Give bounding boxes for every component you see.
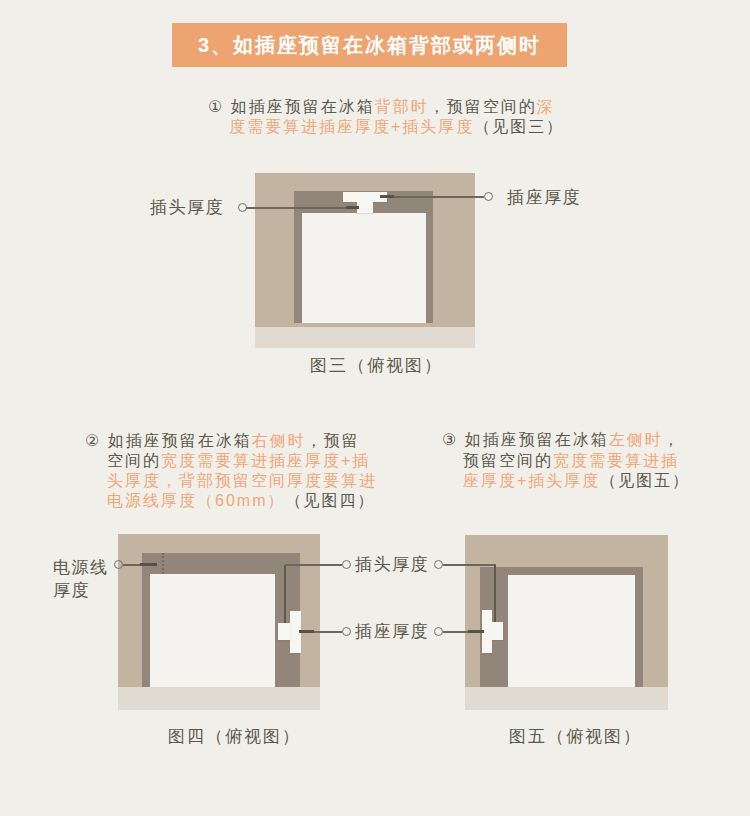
fig5-plug-callout-line [443,564,496,566]
center-plug-right-circle-icon [434,560,443,569]
fig3-caption: 图三（俯视图） [310,356,443,376]
fig4-cord-callout-stub [140,563,157,566]
fig4-plug [278,623,290,640]
fig3-socket-callout-stub [380,195,394,198]
paragraph-1-line-2: 度需要算进插座厚度+插头厚度（见图三） [229,117,564,137]
fig5-socket-callout-stub [468,630,484,633]
fig5-socket-callout-line [443,631,468,633]
fig4-socket-callout-line [314,631,342,633]
fig3-plug-callout-stub [346,206,359,209]
fig3-plug [357,202,373,213]
text-segment: ，预留 [306,432,360,449]
fig4-floor-strip [118,687,320,710]
fig3-plug-callout-circle-icon [238,203,247,212]
fig4-cord-callout-circle-icon [114,560,123,569]
fig3-socket-callout-line [394,196,484,198]
text-segment: 头厚度，背部预留空间厚度要算进 [107,472,377,489]
fig4-caption: 图四（俯视图） [168,727,301,747]
text-segment: ③ 如插座预留在冰箱 [442,431,609,448]
paragraph-2-line-1: ② 如插座预留在冰箱右侧时，预留 [85,431,360,451]
fig4-cord-thickness-label: 电源线 厚度 [53,556,109,602]
paragraph-3-line-1: ③ 如插座预留在冰箱左侧时， [442,430,681,450]
text-segment: 度需要算进插座厚度+插头厚度 [229,118,474,135]
fig5-caption: 图五（俯视图） [509,727,642,747]
fig4-cord-label-line-1: 电源线 [53,556,109,579]
text-segment: 预留空间的 [463,452,553,469]
fig3-socket-thickness-label: 插座厚度 [507,188,581,208]
fig4-socket-callout-stub [299,630,314,633]
fig4-cord-dotted-line [162,553,164,574]
fig4-cord-callout-line [123,564,140,566]
text-segment: 宽度需要算进插 [553,452,679,469]
fig3-fridge-body [302,213,426,323]
center-plug-thickness-label: 插头厚度 [355,555,429,575]
text-segment: 宽度需要算进插座厚度+插 [161,452,370,469]
text-segment: ① 如插座预留在冰箱 [208,98,375,115]
text-segment: 座厚度+插头厚度 [463,472,600,489]
paragraph-2-line-2: 空间的宽度需要算进插座厚度+插 [107,451,370,471]
paragraph-3-line-2: 预留空间的宽度需要算进插 [463,451,679,471]
fig4-plug-callout-vline [284,565,286,623]
center-socket-left-circle-icon [342,627,351,636]
text-segment: ，预留空间的 [429,98,537,115]
text-segment: ， [663,431,681,448]
fig3-socket-callout-circle-icon [484,192,493,201]
fig3-floor-strip [255,327,475,348]
fig4-fridge-body [150,574,275,687]
fig5-floor-strip [465,687,668,710]
fig5-fridge-body [508,575,635,687]
fig4-cord-label-line-2: 厚度 [53,579,109,602]
paragraph-2-line-3: 头厚度，背部预留空间厚度要算进 [107,471,377,491]
paragraph-1-line-1: ① 如插座预留在冰箱背部时，预留空间的深 [208,97,555,117]
fig5-plug-callout-vline [494,565,496,622]
text-segment: （见图四） [285,492,375,509]
paragraph-3-line-3: 座厚度+插头厚度（见图五） [463,471,690,491]
text-segment: 空间的 [107,452,161,469]
text-segment: （见图五） [600,472,690,489]
center-plug-left-circle-icon [342,560,351,569]
fig5-plug [492,622,503,640]
text-segment: 背部时 [375,98,429,115]
text-segment: 左侧时 [609,431,663,448]
center-socket-thickness-label: 插座厚度 [355,622,429,642]
fig3-plug-callout-line [246,207,346,209]
paragraph-2-line-4: 电源线厚度（60mm）（见图四） [107,491,375,511]
center-socket-right-circle-icon [434,627,443,636]
section-banner: 3、如插座预留在冰箱背部或两侧时 [172,23,567,67]
text-segment: ② 如插座预留在冰箱 [85,432,252,449]
text-segment: 电源线厚度（60mm） [107,492,285,509]
fig3-plug-thickness-label: 插头厚度 [150,198,224,218]
page: 3、如插座预留在冰箱背部或两侧时 ① 如插座预留在冰箱背部时，预留空间的深 度需… [0,0,750,816]
text-segment: （见图三） [474,118,564,135]
text-segment: 右侧时 [252,432,306,449]
fig4-plug-callout-line [285,564,342,566]
text-segment: 深 [537,98,555,115]
